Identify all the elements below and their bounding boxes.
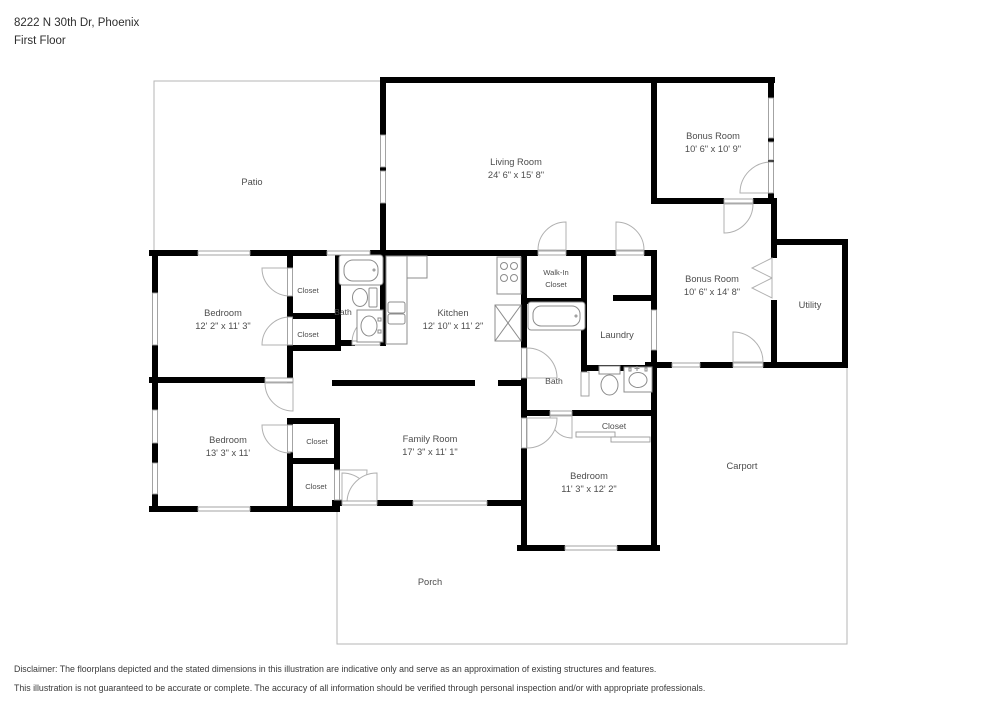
door-arc xyxy=(262,268,290,296)
room-dims-living-room: 24' 6" x 15' 8" xyxy=(488,170,544,180)
bifold-door xyxy=(752,278,772,298)
room-label-patio: Patio xyxy=(241,177,262,187)
toilet-icon xyxy=(353,288,378,307)
room-dims-bedroom-2: 13' 3" x 11' xyxy=(206,448,251,458)
room-label-laundry: Laundry xyxy=(600,330,634,340)
room-label-bonus-room-2: Bonus Room xyxy=(685,274,739,284)
bifold-door xyxy=(752,258,772,278)
disclaimer-line-2: This illustration is not guaranteed to b… xyxy=(14,679,984,698)
room-dims-family-room: 17' 3" x 11' 1" xyxy=(402,447,457,457)
window xyxy=(652,310,657,350)
room-label-bath-2: Bath xyxy=(545,376,563,386)
room-label-bath-1: Bath xyxy=(334,307,352,317)
door-arc xyxy=(527,348,557,378)
room-label-closet-d: Closet xyxy=(305,482,327,491)
window xyxy=(198,251,250,255)
room-label-family-room: Family Room xyxy=(403,434,458,444)
window xyxy=(672,363,700,367)
refrigerator-icon xyxy=(495,305,521,341)
room-dims-bonus-room-2: 10' 6" x 14' 8" xyxy=(684,287,740,297)
bathtub-icon xyxy=(339,255,383,285)
window xyxy=(769,98,774,138)
disclaimer: Disclaimer: The floorplans depicted and … xyxy=(14,660,984,698)
sink-icon xyxy=(357,310,383,342)
room-label-closet-c: Closet xyxy=(306,437,328,446)
room-label-kitchen: Kitchen xyxy=(437,308,468,318)
door-arc xyxy=(724,204,753,233)
carport-porch-outline xyxy=(337,368,847,644)
window xyxy=(153,410,158,443)
room-label-living-room: Living Room xyxy=(490,157,542,167)
room-label-bedroom-1: Bedroom xyxy=(204,308,242,318)
door-arc xyxy=(265,383,293,411)
kitchen-sink-icon xyxy=(388,302,405,324)
toilet-icon xyxy=(599,366,620,395)
patio-outline xyxy=(154,81,381,251)
room-label-closet-a: Closet xyxy=(297,286,319,295)
room-label-utility: Utility xyxy=(799,300,822,310)
room-dims-kitchen: 12' 10" x 11' 2" xyxy=(423,321,484,331)
stove-icon xyxy=(497,257,521,294)
sliding-door xyxy=(576,432,615,437)
window xyxy=(153,463,158,494)
window xyxy=(565,546,617,550)
window xyxy=(153,293,158,345)
door-arc xyxy=(733,332,763,362)
room-label-bedroom-3: Bedroom xyxy=(570,471,608,481)
floorplan-page: 8222 N 30th Dr, Phoenix First Floor xyxy=(0,0,1000,707)
sink-icon xyxy=(624,366,652,392)
room-label-closet-e: Closet xyxy=(602,421,627,431)
bathtub-icon xyxy=(528,302,585,330)
room-label-bonus-room-1: Bonus Room xyxy=(686,131,740,141)
room-label-closet-b: Closet xyxy=(297,330,319,339)
window xyxy=(381,135,386,167)
room-dims-bedroom-1: 12' 2" x 11' 3" xyxy=(195,321,250,331)
sliding-door xyxy=(611,437,650,442)
kitchen-counter xyxy=(386,256,427,344)
room-label-carport: Carport xyxy=(726,461,757,471)
window xyxy=(769,142,774,160)
door-arc xyxy=(740,162,771,193)
door-arc xyxy=(527,418,557,448)
door-arc xyxy=(616,222,644,250)
door-arc xyxy=(538,222,566,250)
fixtures xyxy=(339,255,652,395)
window xyxy=(413,501,487,505)
room-label-bedroom-2: Bedroom xyxy=(209,435,247,445)
floorplan-svg: Patio Living Room 24' 6" x 15' 8" Bonus … xyxy=(0,0,1000,707)
window xyxy=(327,251,370,255)
room-label-walk-in-closet-1: Walk-In xyxy=(543,268,568,277)
door-arc xyxy=(262,425,290,453)
window xyxy=(198,507,250,511)
room-dims-bedroom-3: 11' 3" x 12' 2" xyxy=(561,484,616,494)
room-dims-bonus-room-1: 10' 6" x 10' 9" xyxy=(685,144,741,154)
window xyxy=(381,171,386,203)
disclaimer-line-1: Disclaimer: The floorplans depicted and … xyxy=(14,660,984,679)
room-label-walk-in-closet-2: Closet xyxy=(545,280,567,289)
door-arc xyxy=(262,317,290,345)
room-label-porch: Porch xyxy=(418,577,442,587)
